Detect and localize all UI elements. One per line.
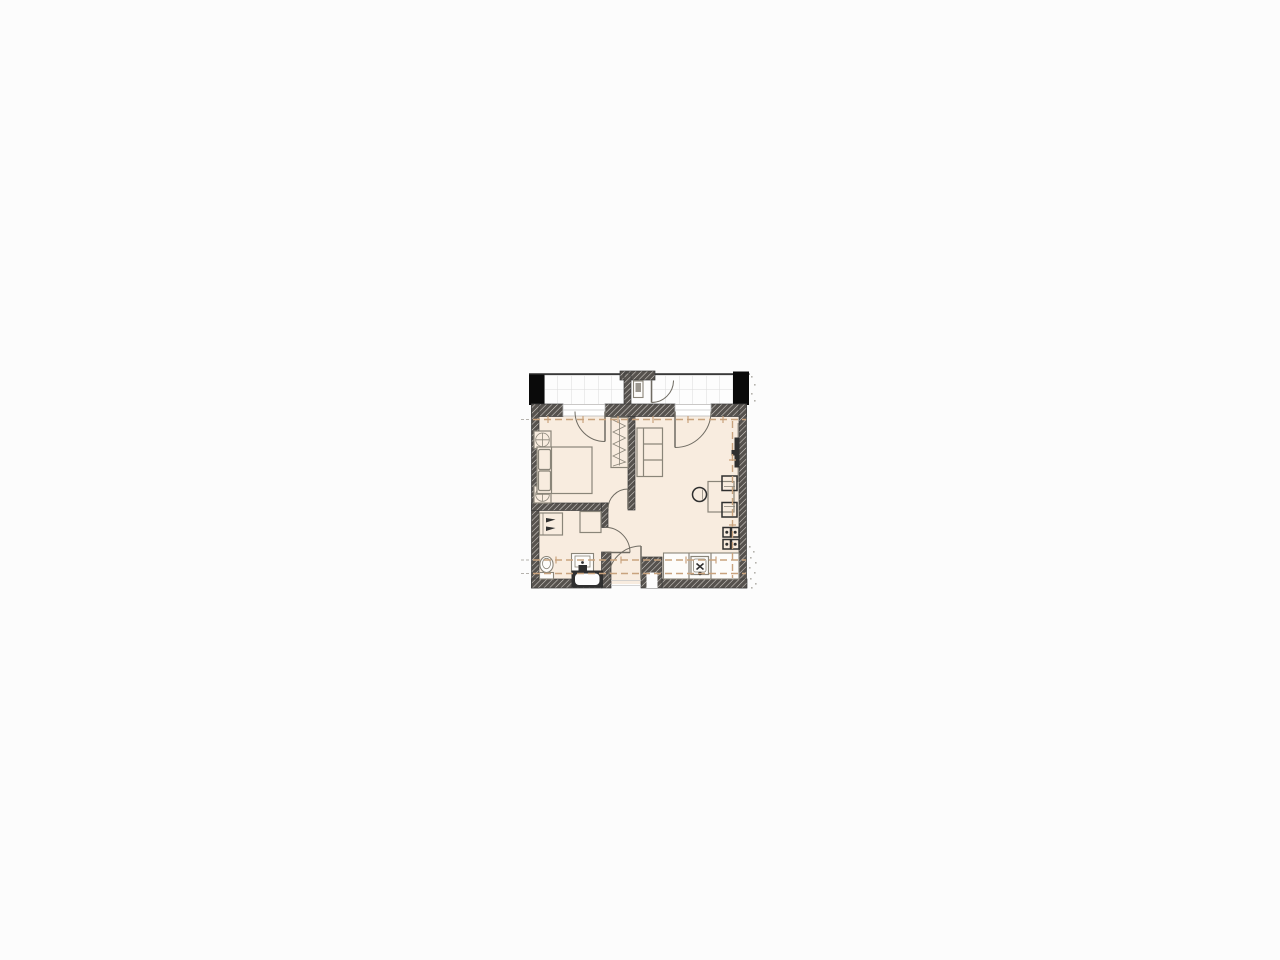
burner1-dot: [725, 531, 728, 534]
storage-shelf-inner: [636, 383, 642, 392]
structural-column-right: [733, 372, 749, 406]
balcony: [529, 371, 750, 405]
sofa-body: [637, 428, 663, 477]
floor-plan-drawing: [0, 0, 1280, 960]
wall-bottom-kitchen: [662, 579, 747, 588]
burner4-dot: [734, 543, 737, 546]
wall-bathroom-right-top: [602, 503, 609, 528]
wardrobe-hangers: [611, 418, 628, 468]
washing-machine: [540, 513, 563, 535]
wall-bedroom-bottom: [532, 503, 609, 511]
bathtub: [572, 571, 604, 588]
shower-unit: [580, 512, 601, 533]
bath-sink-knob: [581, 561, 584, 564]
storage-wall-left: [624, 373, 631, 405]
entry-recess-notch: [647, 573, 658, 589]
bathroom-sink: [572, 554, 594, 572]
burner3-dot: [725, 543, 728, 546]
page: [0, 0, 1280, 960]
bath-sink-faucet: [579, 565, 588, 571]
ground-speckle: [749, 376, 757, 589]
sofa: [637, 428, 663, 477]
wall-partition-bedroom: [628, 417, 635, 511]
wall-top-middle: [605, 404, 675, 417]
toilet-bowl: [540, 557, 553, 573]
burner2-dot: [734, 531, 737, 534]
structural-column-left: [529, 375, 545, 406]
double-bed: [537, 447, 592, 494]
bathtub-basin: [575, 574, 600, 586]
